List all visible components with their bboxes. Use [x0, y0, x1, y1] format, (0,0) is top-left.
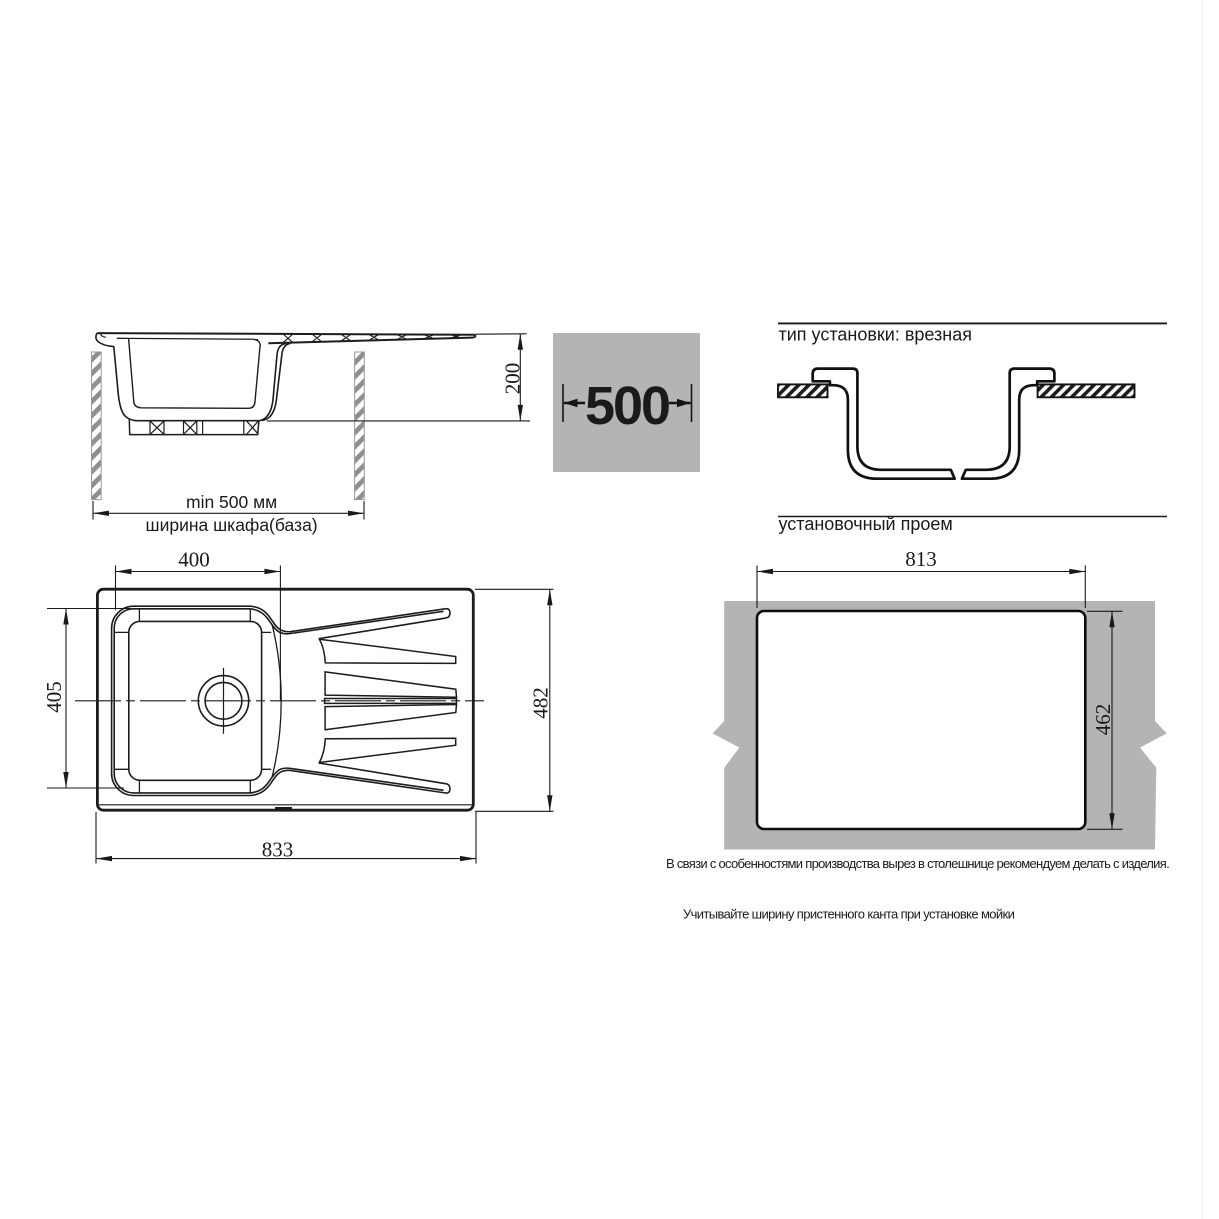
svg-text:500: 500 [585, 376, 669, 436]
svg-text:установочный проем: установочный проем [779, 514, 953, 534]
svg-text:833: 833 [262, 838, 294, 862]
svg-text:200: 200 [501, 363, 525, 395]
svg-text:400: 400 [178, 548, 210, 572]
svg-text:тип установки: врезная: тип установки: врезная [779, 325, 972, 345]
svg-text:813: 813 [905, 547, 937, 571]
svg-text:462: 462 [1091, 704, 1115, 736]
svg-text:482: 482 [529, 687, 553, 719]
svg-text:ширина шкафа(база): ширина шкафа(база) [146, 515, 318, 535]
svg-text:405: 405 [42, 681, 66, 713]
svg-text:Учитывайте ширину пристенного: Учитывайте ширину пристенного канта при … [683, 907, 1015, 922]
svg-text:В связи с особенностями произв: В связи с особенностями производства выр… [666, 856, 1169, 871]
svg-text:min 500 мм: min 500 мм [186, 492, 277, 512]
